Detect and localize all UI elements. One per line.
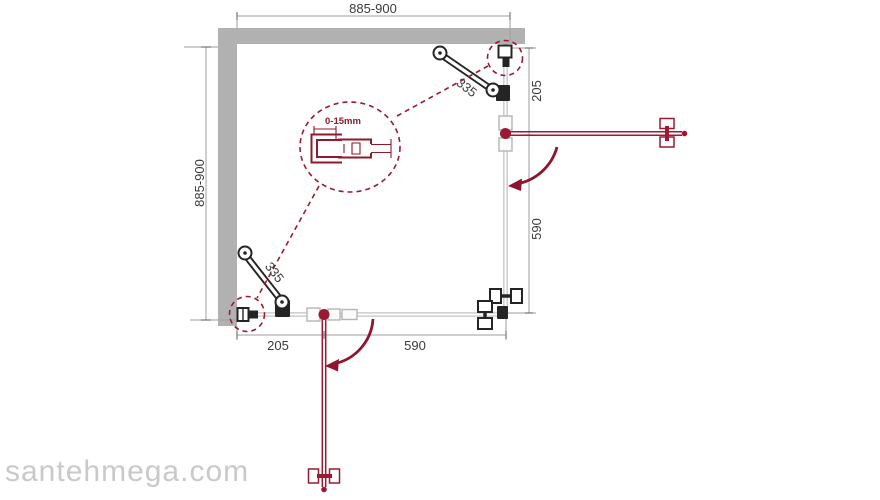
open-door-right	[500, 119, 687, 148]
dim-bottom-door: 590	[404, 338, 426, 353]
wall-profile-bottom-left	[238, 308, 259, 321]
shower-enclosure-plan: 0-15mm 885-900 885-900 205 590 205 590 3…	[0, 0, 880, 500]
pivot-point-bottom	[319, 309, 330, 320]
wall-top	[218, 28, 525, 44]
corner-bracket	[497, 306, 508, 319]
detail-adjustment-label: 0-15mm	[325, 116, 361, 127]
detail-bubble: 0-15mm	[300, 102, 400, 192]
detail-leader-lines	[257, 66, 488, 298]
swing-arc-right	[508, 147, 557, 191]
pivot-point-right	[500, 128, 511, 139]
dim-right-door: 590	[529, 218, 544, 240]
dim-top-width: 885-900	[349, 1, 397, 16]
swing-arc-bottom	[325, 319, 373, 372]
wall-left	[218, 28, 237, 326]
pivot-hinge-bottom	[307, 308, 357, 321]
watermark-text: santehmega.com	[5, 455, 249, 488]
dim-right-fixed: 205	[529, 80, 544, 102]
dim-left-depth: 885-900	[192, 159, 207, 207]
wall-profile-top-right	[499, 46, 512, 68]
drawing-canvas: 0-15mm 885-900 885-900 205 590 205 590 3…	[0, 0, 880, 500]
dimension-lines	[201, 12, 533, 339]
profile-cross-section: 0-15mm	[312, 116, 392, 163]
dim-bottom-fixed: 205	[267, 338, 289, 353]
support-brace-bottom	[239, 247, 291, 318]
